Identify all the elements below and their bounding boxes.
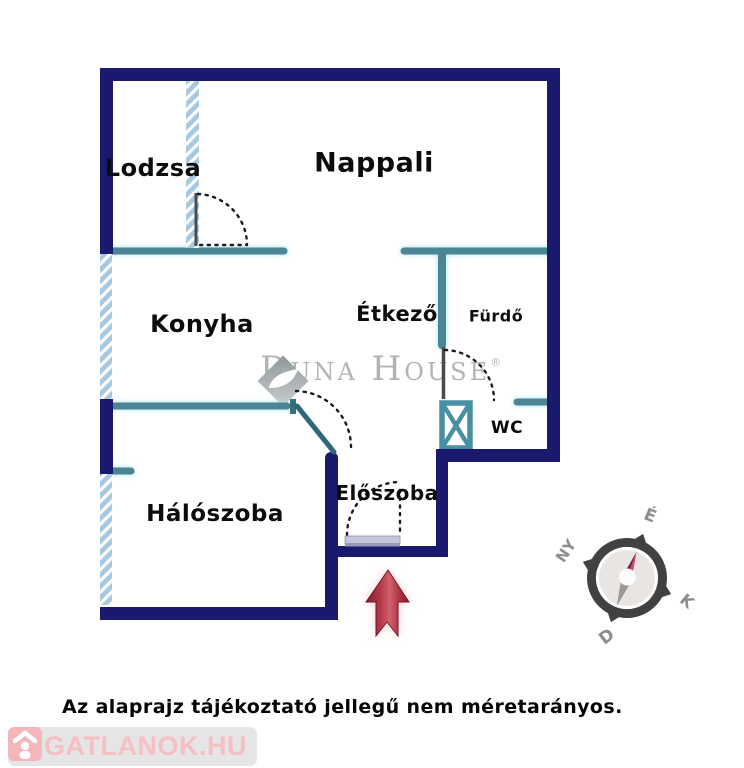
shaft-x-symbol xyxy=(442,403,470,448)
compass xyxy=(567,518,687,638)
outer-wall-left-middle xyxy=(100,399,113,474)
outer-wall-bottom xyxy=(100,607,338,620)
house-icon xyxy=(8,727,42,761)
room-label-konyha: Konyha xyxy=(150,310,254,338)
wall-wc-bottom xyxy=(440,449,560,462)
window-konyha xyxy=(100,254,112,399)
window-haloszoba xyxy=(100,474,112,605)
entrance-door xyxy=(345,536,400,547)
door-arc-lodzsa xyxy=(198,194,247,244)
disclaimer-text: Az alaprajz tájékoztató jellegű nem mére… xyxy=(62,696,623,718)
entrance-arrow xyxy=(366,570,409,636)
room-label-nappali: Nappali xyxy=(314,148,434,179)
room-label-eloszoba: Előszoba xyxy=(335,481,438,505)
outer-wall-right xyxy=(547,68,560,462)
wall-eloszoba-bottom xyxy=(338,546,448,557)
room-label-lodzsa: Lodzsa xyxy=(105,154,201,182)
ingatlanok-logo-text: INGATLANOK.HU xyxy=(16,731,247,762)
room-label-etkezo: Étkező xyxy=(356,302,438,326)
wall-haloszoba-right xyxy=(325,452,338,620)
room-label-haloszoba: Hálószoba xyxy=(146,501,284,527)
partition-walls xyxy=(112,251,549,471)
room-label-furdo: Fürdő xyxy=(469,307,523,326)
floor-plan-canvas: Duna House® xyxy=(0,0,744,768)
ingatlanok-logo: INGATLANOK.HU xyxy=(8,727,257,766)
door-leaf-konyha xyxy=(297,406,334,452)
floor-plan-drawing xyxy=(0,0,744,768)
outer-wall-top xyxy=(100,68,560,81)
room-label-wc: WC xyxy=(491,418,523,438)
door-arc-furdo xyxy=(445,350,494,400)
